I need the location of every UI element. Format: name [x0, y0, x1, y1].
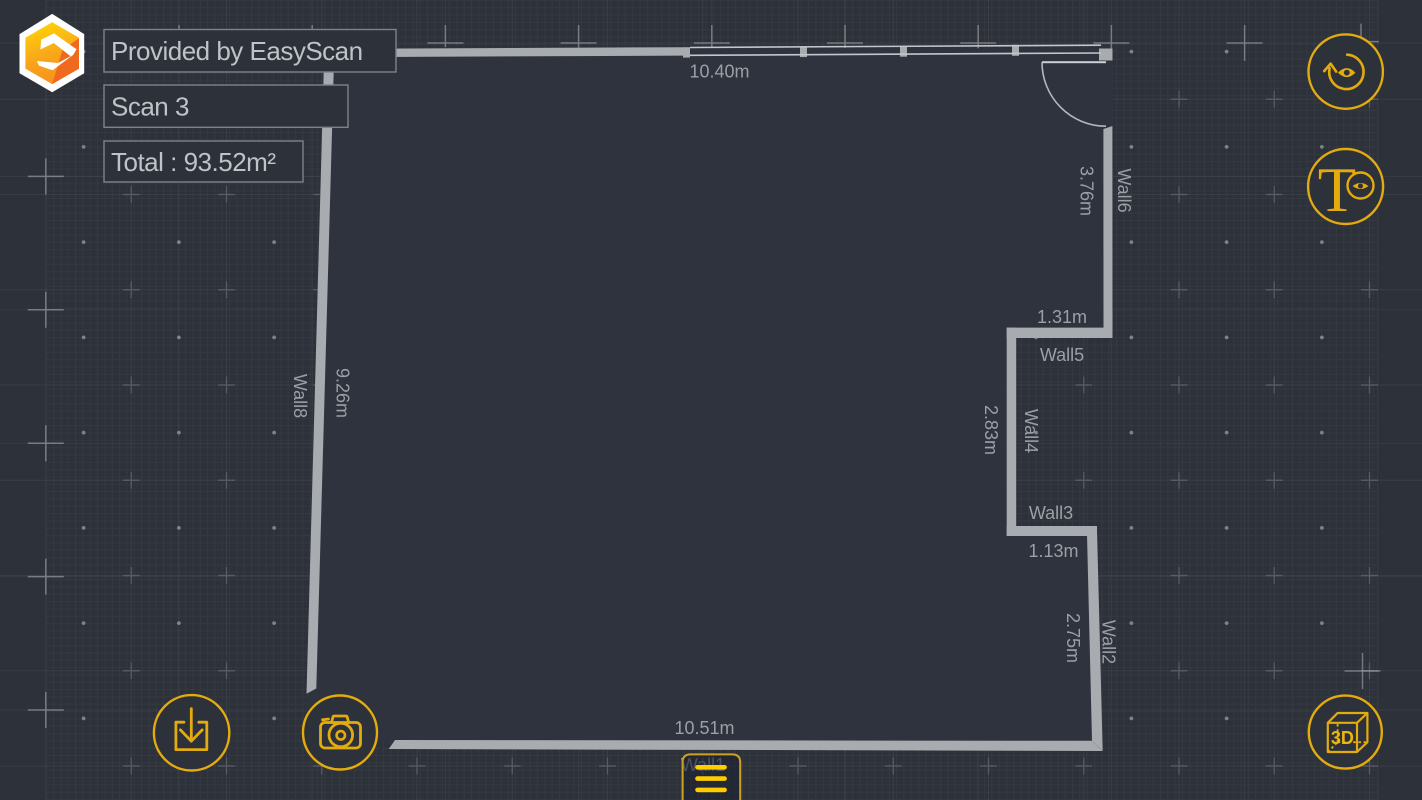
svg-text:Wall8: Wall8	[290, 374, 310, 418]
svg-text:9.26m: 9.26m	[333, 368, 353, 418]
svg-text:2.75m: 2.75m	[1063, 613, 1083, 663]
svg-text:Wall6: Wall6	[1114, 168, 1134, 212]
svg-text:Wall3: Wall3	[1029, 503, 1073, 523]
svg-text:Total : 93.52m²: Total : 93.52m²	[111, 147, 276, 177]
svg-text:Wall5: Wall5	[1040, 345, 1084, 365]
svg-text:3.76m: 3.76m	[1077, 166, 1097, 216]
svg-text:1.13m: 1.13m	[1028, 541, 1078, 561]
svg-text:Scan 3: Scan 3	[111, 92, 189, 122]
svg-text:Wall4: Wall4	[1021, 409, 1041, 453]
svg-text:Wall2: Wall2	[1099, 620, 1119, 664]
svg-text:3D: 3D	[1331, 728, 1354, 748]
svg-text:10.40m: 10.40m	[689, 62, 749, 82]
svg-text:1.31m: 1.31m	[1037, 307, 1087, 327]
svg-text:Provided by EasyScan: Provided by EasyScan	[111, 36, 363, 66]
svg-text:10.51m: 10.51m	[674, 718, 734, 738]
svg-text:2.83m: 2.83m	[981, 405, 1001, 455]
